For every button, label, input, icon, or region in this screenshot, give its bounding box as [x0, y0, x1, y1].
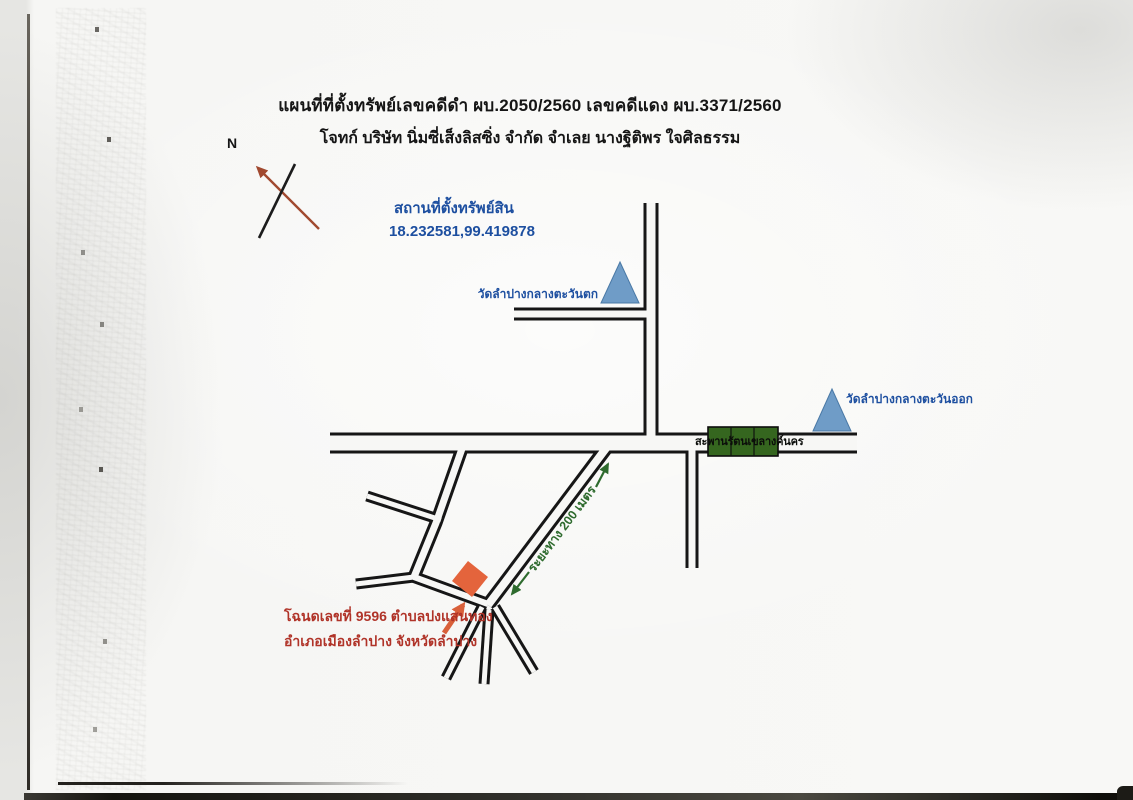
deed-info-line1: โฉนดเลขที่ 9596 ตำบลปงแสนทอง	[284, 606, 493, 628]
scanned-map-document: แผนที่ที่ตั้งทรัพย์เลขคดีดำ ผบ.2050/2560…	[0, 0, 1133, 800]
temple-west-marker	[601, 262, 639, 303]
document-title-line2: โจทก์ บริษัท นิ่มซี่เส็งลิสซิ่ง จำกัด จำ…	[180, 126, 880, 151]
north-arrow	[258, 164, 319, 238]
temple-east-label: วัดลำปางกลางตะวันออก	[846, 390, 973, 409]
document-title-line1: แผนที่ที่ตั้งทรัพย์เลขคดีดำ ผบ.2050/2560…	[180, 92, 880, 119]
north-label: N	[227, 135, 237, 151]
gps-coordinates: 18.232581,99.419878	[389, 223, 535, 240]
temple-west-label: วัดลำปางกลางตะวันตก	[470, 285, 598, 304]
deed-info-line2: อำเภอเมืองลำปาง จังหวัดลำปาง	[284, 631, 477, 653]
property-location-label: สถานที่ตั้งทรัพย์สิน	[394, 196, 514, 220]
bridge-label: สะพานรัตนเขลางค์นคร	[695, 432, 803, 450]
